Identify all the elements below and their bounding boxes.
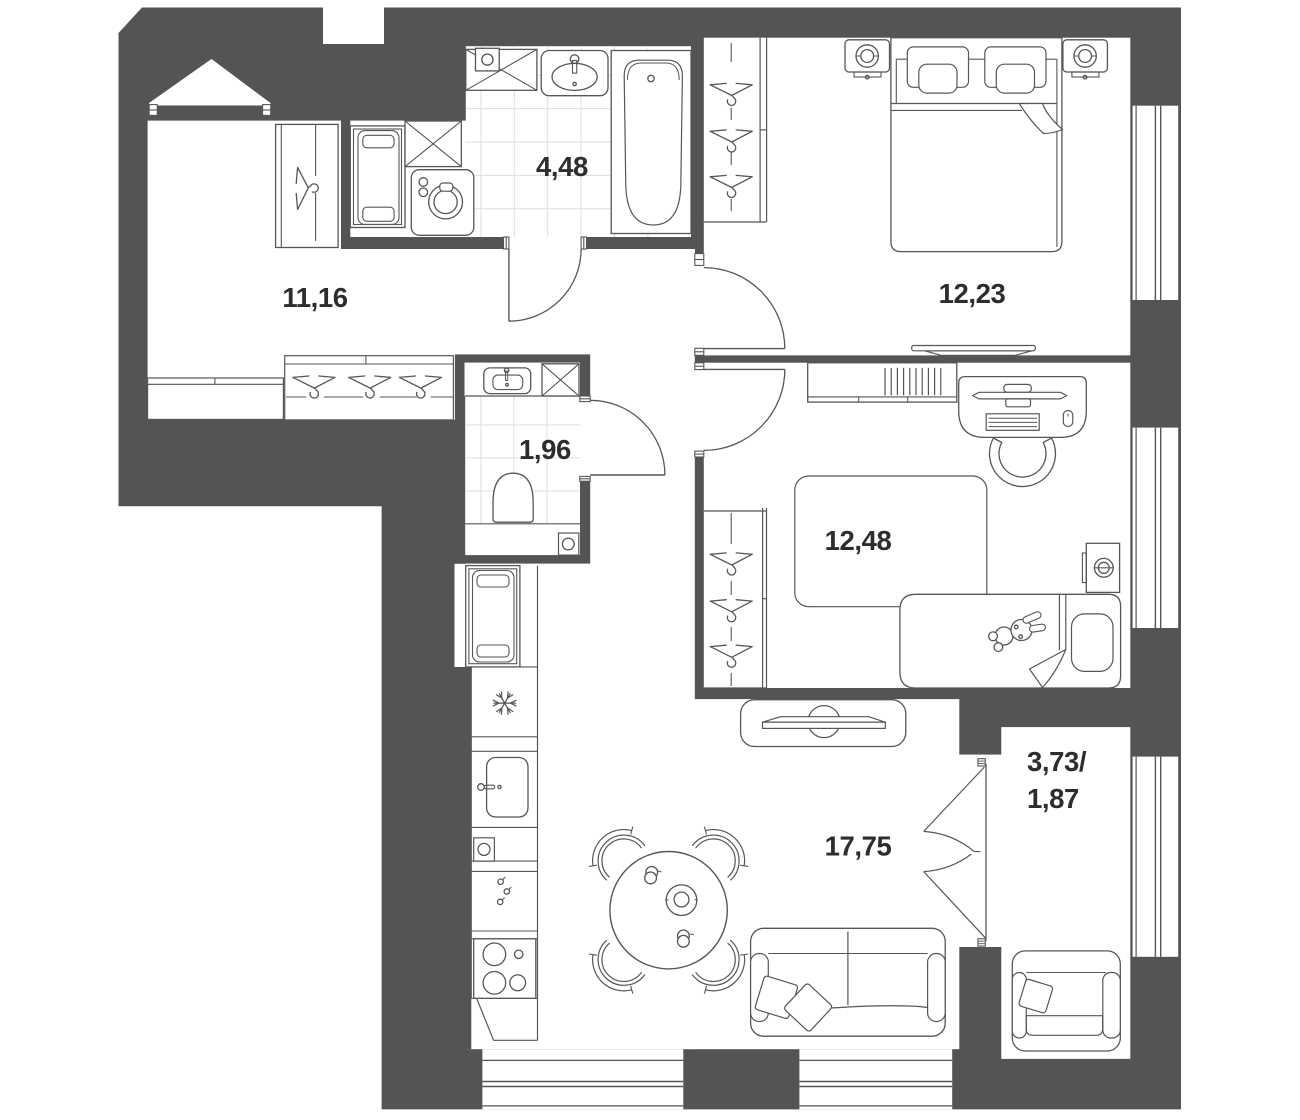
svg-text:3,73/: 3,73/: [1027, 746, 1087, 777]
svg-text:17,75: 17,75: [825, 831, 892, 862]
svg-text:11,16: 11,16: [282, 282, 347, 313]
svg-text:12,23: 12,23: [939, 278, 1006, 309]
svg-text:1,87: 1,87: [1027, 783, 1079, 814]
svg-text:1,96: 1,96: [519, 434, 571, 465]
svg-text:4,48: 4,48: [536, 151, 588, 182]
svg-text:12,48: 12,48: [825, 525, 892, 556]
